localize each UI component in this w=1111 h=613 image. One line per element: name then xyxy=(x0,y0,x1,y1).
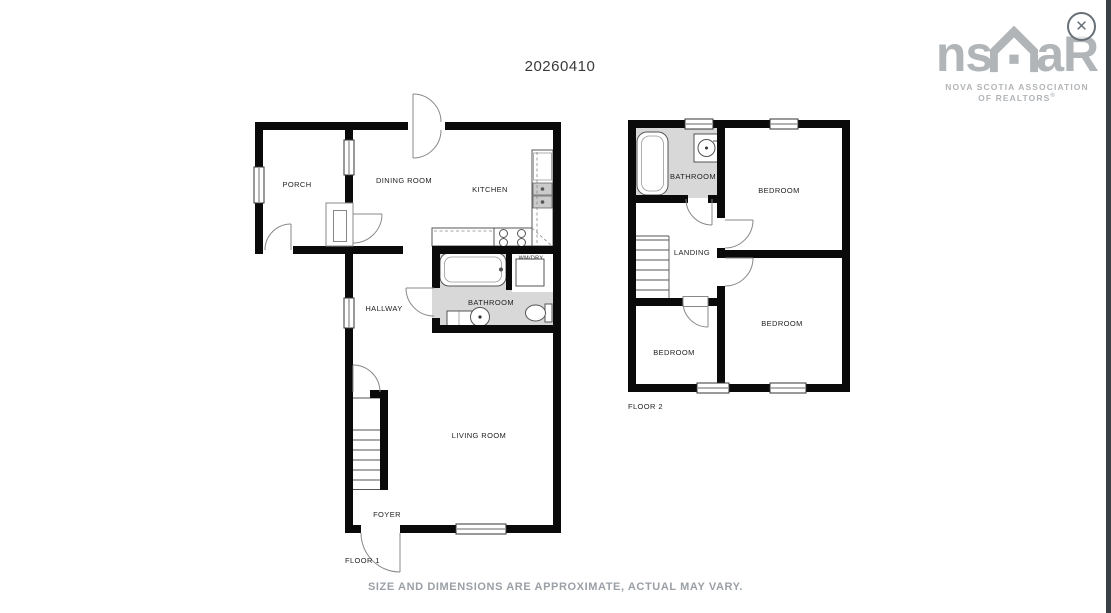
floor1-toilet-tank xyxy=(545,304,552,322)
floor2-stairs xyxy=(636,236,669,298)
floor2-plan: BATHROOM BEDROOM LANDING BEDROOM BEDROOM… xyxy=(628,119,850,411)
logo-text-ns: ns xyxy=(936,32,992,77)
room-label-porch: PORCH xyxy=(282,180,311,189)
house-icon xyxy=(990,24,1038,76)
room-label-dining: DINING ROOM xyxy=(376,176,432,185)
logo-reg-mark: ® xyxy=(1050,93,1056,99)
floor1-bathtub xyxy=(440,253,506,286)
room-label-bedroom-right: BEDROOM xyxy=(761,319,803,328)
room-label-foyer: FOYER xyxy=(373,510,401,519)
floor1-vanity xyxy=(447,311,474,327)
close-button[interactable]: ✕ xyxy=(1067,12,1096,41)
logo-realtors-text: REALTORS xyxy=(996,93,1051,103)
room-label-landing: LANDING xyxy=(674,248,710,257)
logo-of-text: OF xyxy=(978,93,992,103)
logo-subtitle-line2: OF REALTORS® xyxy=(932,93,1102,103)
floor1-plan: PORCH DINING ROOM KITCHEN HALLWAY BATHRO… xyxy=(254,94,561,572)
floor1-toilet xyxy=(526,305,546,321)
room-label-hallway: HALLWAY xyxy=(365,304,402,313)
room-label-bedroom-top: BEDROOM xyxy=(758,186,800,195)
room-label-kitchen: KITCHEN xyxy=(472,185,508,194)
floor1-washer-dryer xyxy=(516,259,544,286)
floor1-stairs xyxy=(353,398,380,490)
room-label-wmdry: WM/DRY xyxy=(519,256,544,262)
close-icon: ✕ xyxy=(1075,19,1088,34)
room-label-bathroom2: BATHROOM xyxy=(670,172,716,181)
room-label-living: LIVING ROOM xyxy=(452,431,506,440)
logo-subtitle-line1: NOVA SCOTIA ASSOCIATION xyxy=(932,82,1102,92)
floor1-kitchen-fixtures xyxy=(432,150,559,247)
floor2-label: FLOOR 2 xyxy=(628,402,663,411)
room-label-bedroom-left: BEDROOM xyxy=(653,348,695,357)
floor1-label: FLOOR 1 xyxy=(345,556,380,565)
floorplan-viewer: 20260410 xyxy=(0,0,1111,613)
room-label-bathroom1: BATHROOM xyxy=(468,298,514,307)
right-edge-bar xyxy=(1106,0,1111,613)
disclaimer-text: SIZE AND DIMENSIONS ARE APPROXIMATE, ACT… xyxy=(0,581,1111,593)
